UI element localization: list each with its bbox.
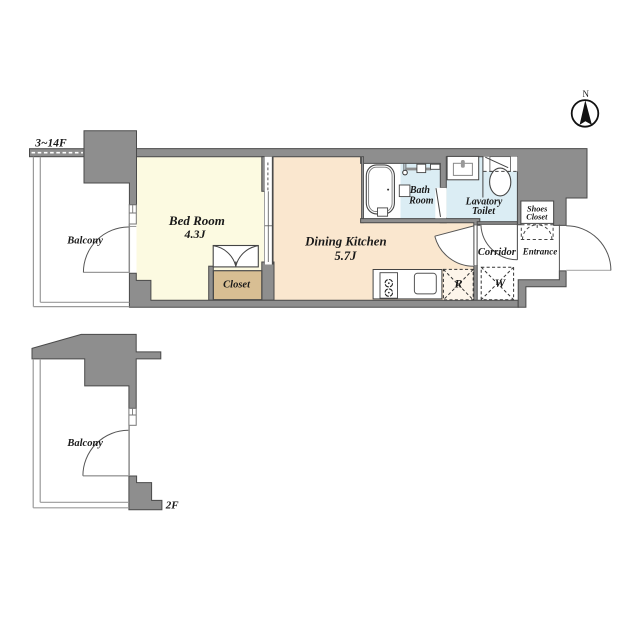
svg-text:3~14F: 3~14F bbox=[34, 137, 67, 149]
svg-text:R: R bbox=[453, 277, 462, 291]
svg-text:Dining Kitchen: Dining Kitchen bbox=[304, 234, 386, 248]
svg-text:Bed Room: Bed Room bbox=[168, 213, 225, 228]
svg-text:N: N bbox=[582, 89, 589, 99]
svg-text:Bath: Bath bbox=[409, 185, 430, 196]
svg-text:5.7J: 5.7J bbox=[334, 249, 357, 263]
svg-text:Corridor: Corridor bbox=[478, 247, 517, 258]
svg-text:2F: 2F bbox=[165, 500, 180, 512]
svg-text:Closet: Closet bbox=[223, 279, 251, 290]
svg-text:Toilet: Toilet bbox=[472, 206, 496, 217]
svg-text:Entrance: Entrance bbox=[522, 247, 558, 257]
svg-text:Balcony: Balcony bbox=[66, 438, 103, 449]
svg-text:W: W bbox=[495, 276, 507, 290]
svg-text:Balcony: Balcony bbox=[66, 236, 103, 247]
svg-text:4.3J: 4.3J bbox=[184, 227, 207, 241]
svg-text:Closet: Closet bbox=[526, 213, 548, 222]
svg-text:Room: Room bbox=[408, 196, 434, 207]
